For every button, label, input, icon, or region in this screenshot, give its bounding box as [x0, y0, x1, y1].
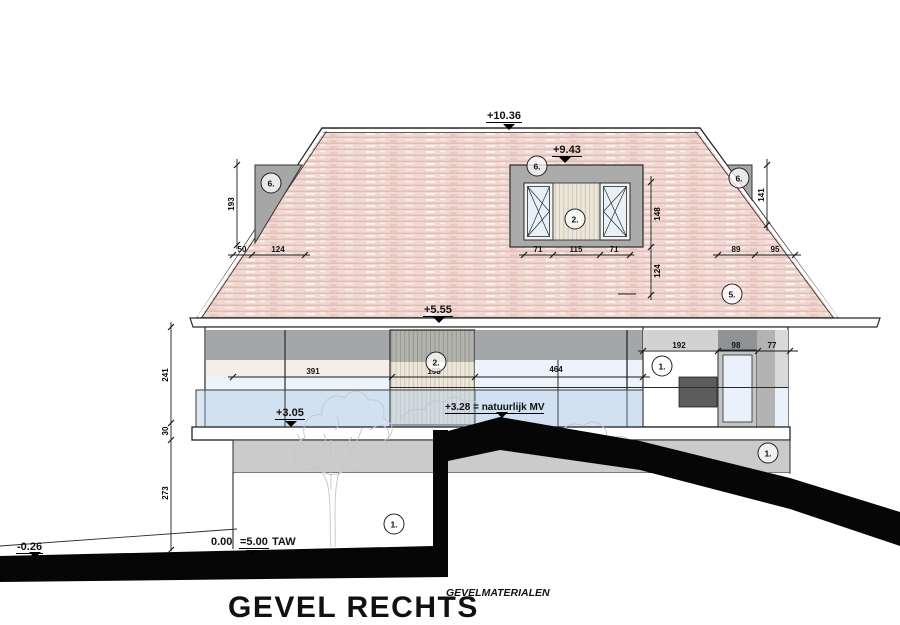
level-zero: 0.00 [211, 536, 232, 548]
dim-roof-left-h: 193 [220, 193, 242, 215]
datum-unit: TAW [272, 536, 296, 548]
dim-roof-right-h: 141 [750, 184, 772, 206]
dim-right-w1: 192 [672, 341, 685, 350]
elevation-drawing: +10.36 +9.43 +5.55 +3.05 +3.28 = natuurl… [0, 0, 900, 600]
level-ridge: +10.36 [486, 110, 522, 123]
dim-roof-left-w2: 124 [271, 245, 284, 254]
dim-right-w3: 77 [768, 341, 777, 350]
dim-wall-chain-3: 273 [154, 482, 176, 504]
level-balcony: +3.05 [275, 407, 305, 420]
level-terrain-left: -0.26 [16, 541, 43, 554]
drawing-linework [0, 0, 900, 600]
material-ref-roof-tiles: 5. [722, 284, 743, 305]
legend-title: GEVELMATERIALEN [446, 587, 550, 599]
material-ref-plinth: 1. [758, 443, 779, 464]
dormer [510, 165, 643, 247]
dim-roof-left-w1: 50 [238, 245, 247, 254]
level-natural-ground: +3.28 = natuurlijk MV [445, 402, 544, 414]
material-ref-wall-right: 1. [652, 356, 673, 377]
dim-right-w2: 98 [732, 341, 741, 350]
dim-facade-w3: 464 [549, 365, 562, 374]
material-ref-roof-left: 6. [261, 173, 282, 194]
dim-dormer-w1: 71 [534, 245, 543, 254]
level-zero-datum: =5.00 [239, 536, 269, 549]
material-ref-dormer-top: 6. [527, 156, 548, 177]
glass-balustrade [196, 390, 643, 427]
dim-dormer-h1: 148 [646, 203, 668, 225]
drawing-title: GEVEL RECHTS [228, 591, 479, 625]
eaves-gutter [190, 318, 880, 327]
dim-dormer-w2: 115 [570, 245, 583, 254]
dark-feature-panel [679, 377, 717, 407]
dim-dormer-w3: 71 [610, 245, 619, 254]
dim-facade-w1: 391 [306, 367, 319, 376]
level-dormer: +9.43 [552, 144, 582, 157]
material-ref-dormer-panel: 2. [565, 209, 586, 230]
dim-wall-chain-1: 241 [154, 364, 176, 386]
dim-wall-chain-2: 30 [154, 420, 176, 442]
material-ref-wall-lower: 1. [384, 514, 405, 535]
dim-roof-right-w2: 95 [771, 245, 780, 254]
dim-roof-right-w1: 89 [732, 245, 741, 254]
level-eaves: +5.55 [423, 304, 453, 317]
dim-dormer-h2: 124 [646, 260, 668, 282]
material-ref-roof-right: 6. [729, 168, 750, 189]
material-ref-facade-panel: 2. [426, 352, 447, 373]
